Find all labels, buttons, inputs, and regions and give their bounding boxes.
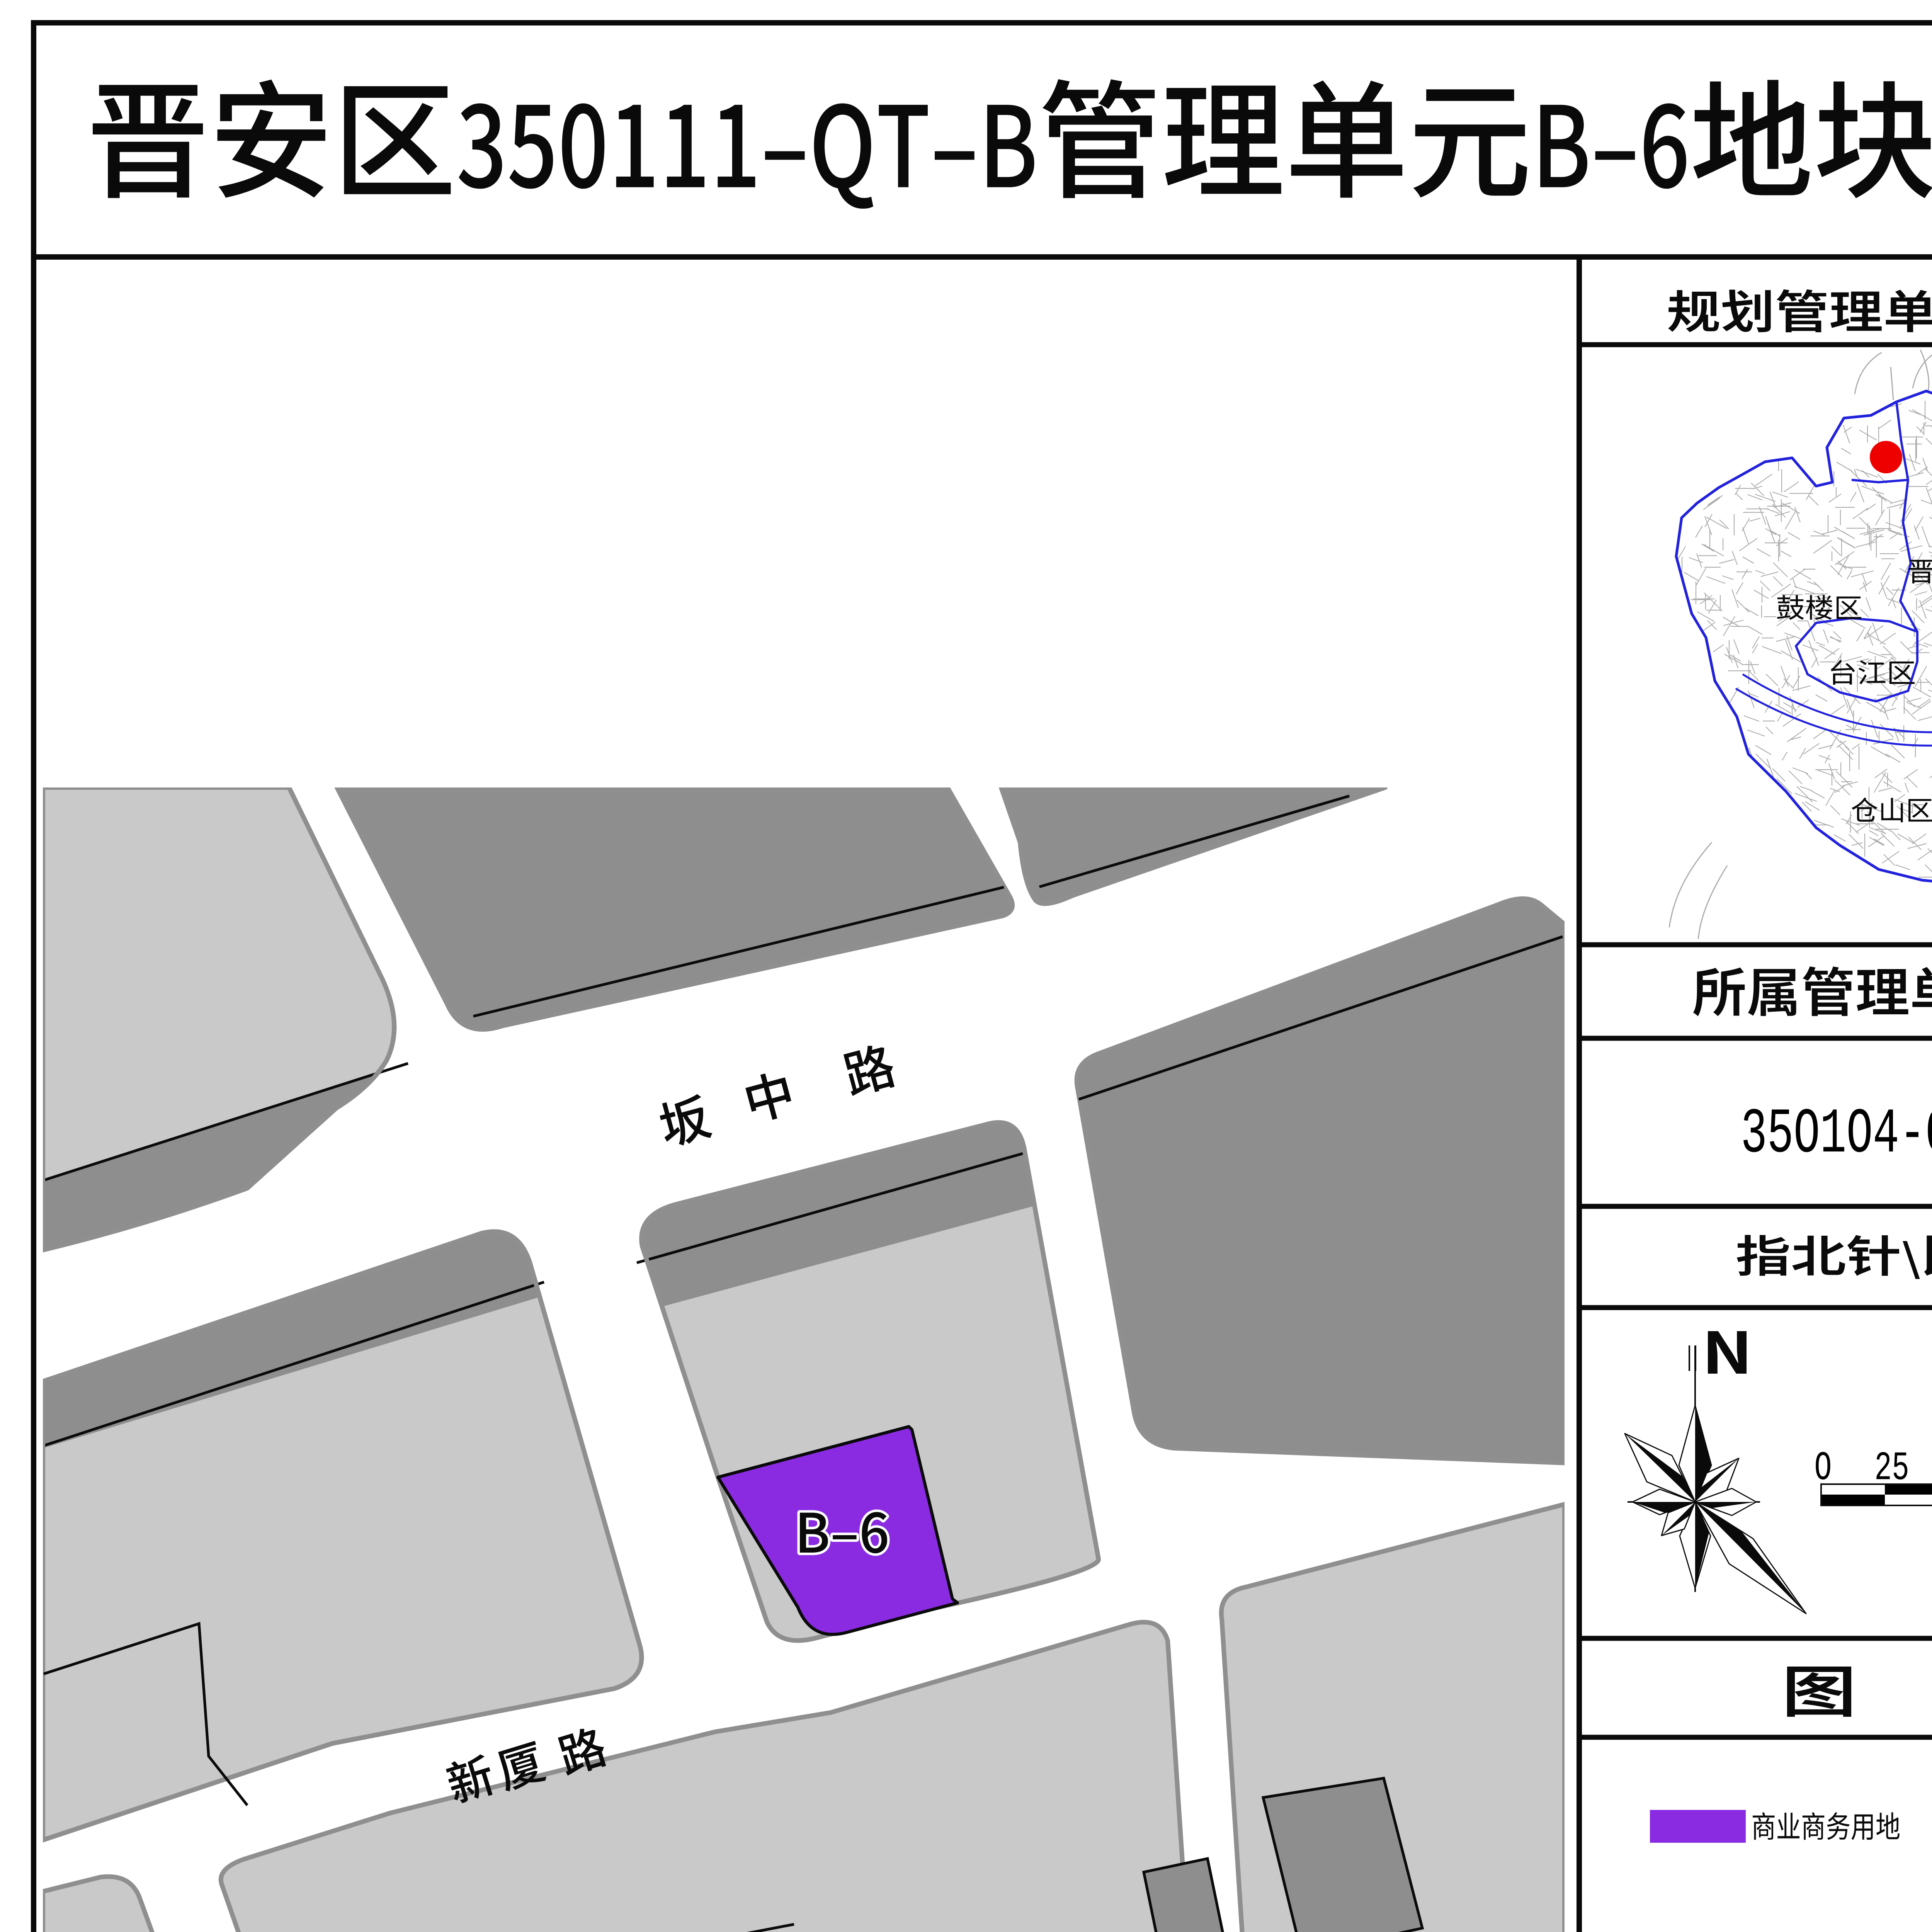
svg-text:O: O: [1815, 1446, 1832, 1492]
svg-text:25: 25: [1874, 1446, 1909, 1492]
svg-text:35O1O4-QT-B: 35O1O4-QT-B: [1741, 1099, 1932, 1171]
